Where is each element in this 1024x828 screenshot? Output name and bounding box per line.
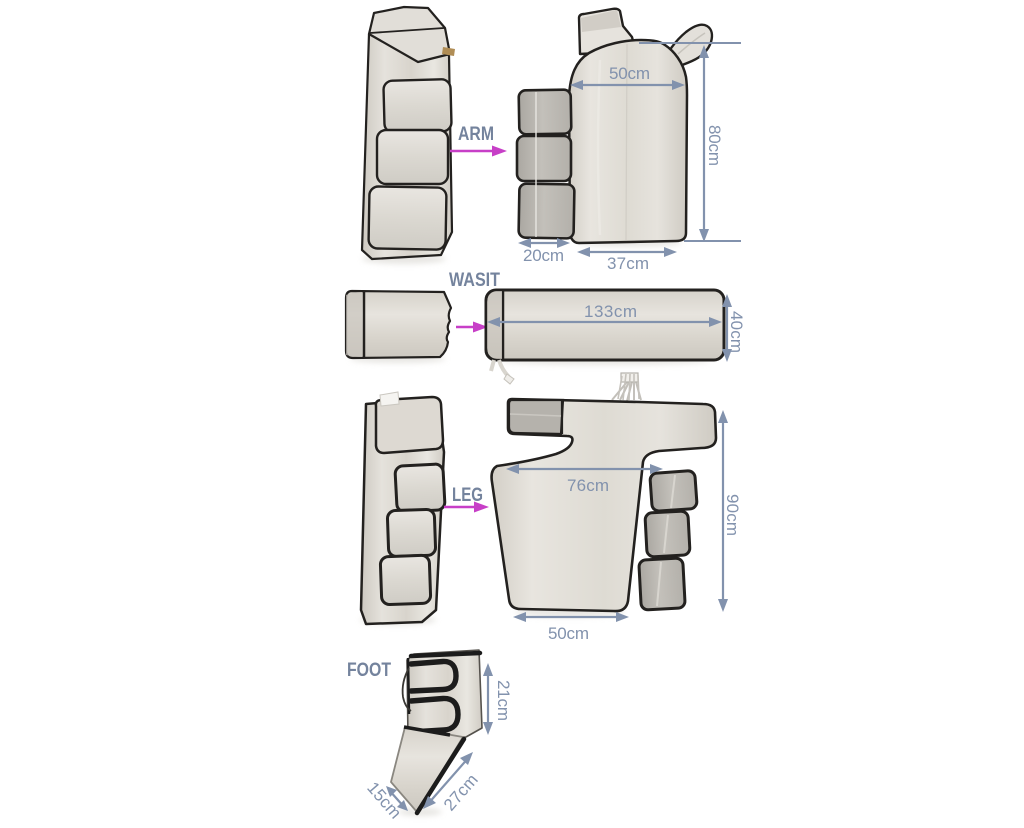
svg-text:37cm: 37cm: [607, 254, 649, 273]
svg-text:ARM: ARM: [458, 124, 494, 145]
svg-text:40cm: 40cm: [727, 311, 746, 353]
svg-text:80cm: 80cm: [705, 125, 724, 166]
svg-text:76cm: 76cm: [567, 476, 609, 495]
svg-text:50cm: 50cm: [609, 64, 650, 83]
svg-text:50cm: 50cm: [548, 624, 589, 643]
svg-text:21cm: 21cm: [494, 680, 513, 721]
svg-text:LEG: LEG: [452, 485, 483, 506]
svg-text:FOOT: FOOT: [347, 660, 391, 681]
svg-text:90cm: 90cm: [723, 494, 742, 536]
svg-text:WASIT: WASIT: [449, 270, 500, 291]
svg-text:20cm: 20cm: [523, 246, 564, 265]
svg-text:133cm: 133cm: [584, 302, 637, 321]
